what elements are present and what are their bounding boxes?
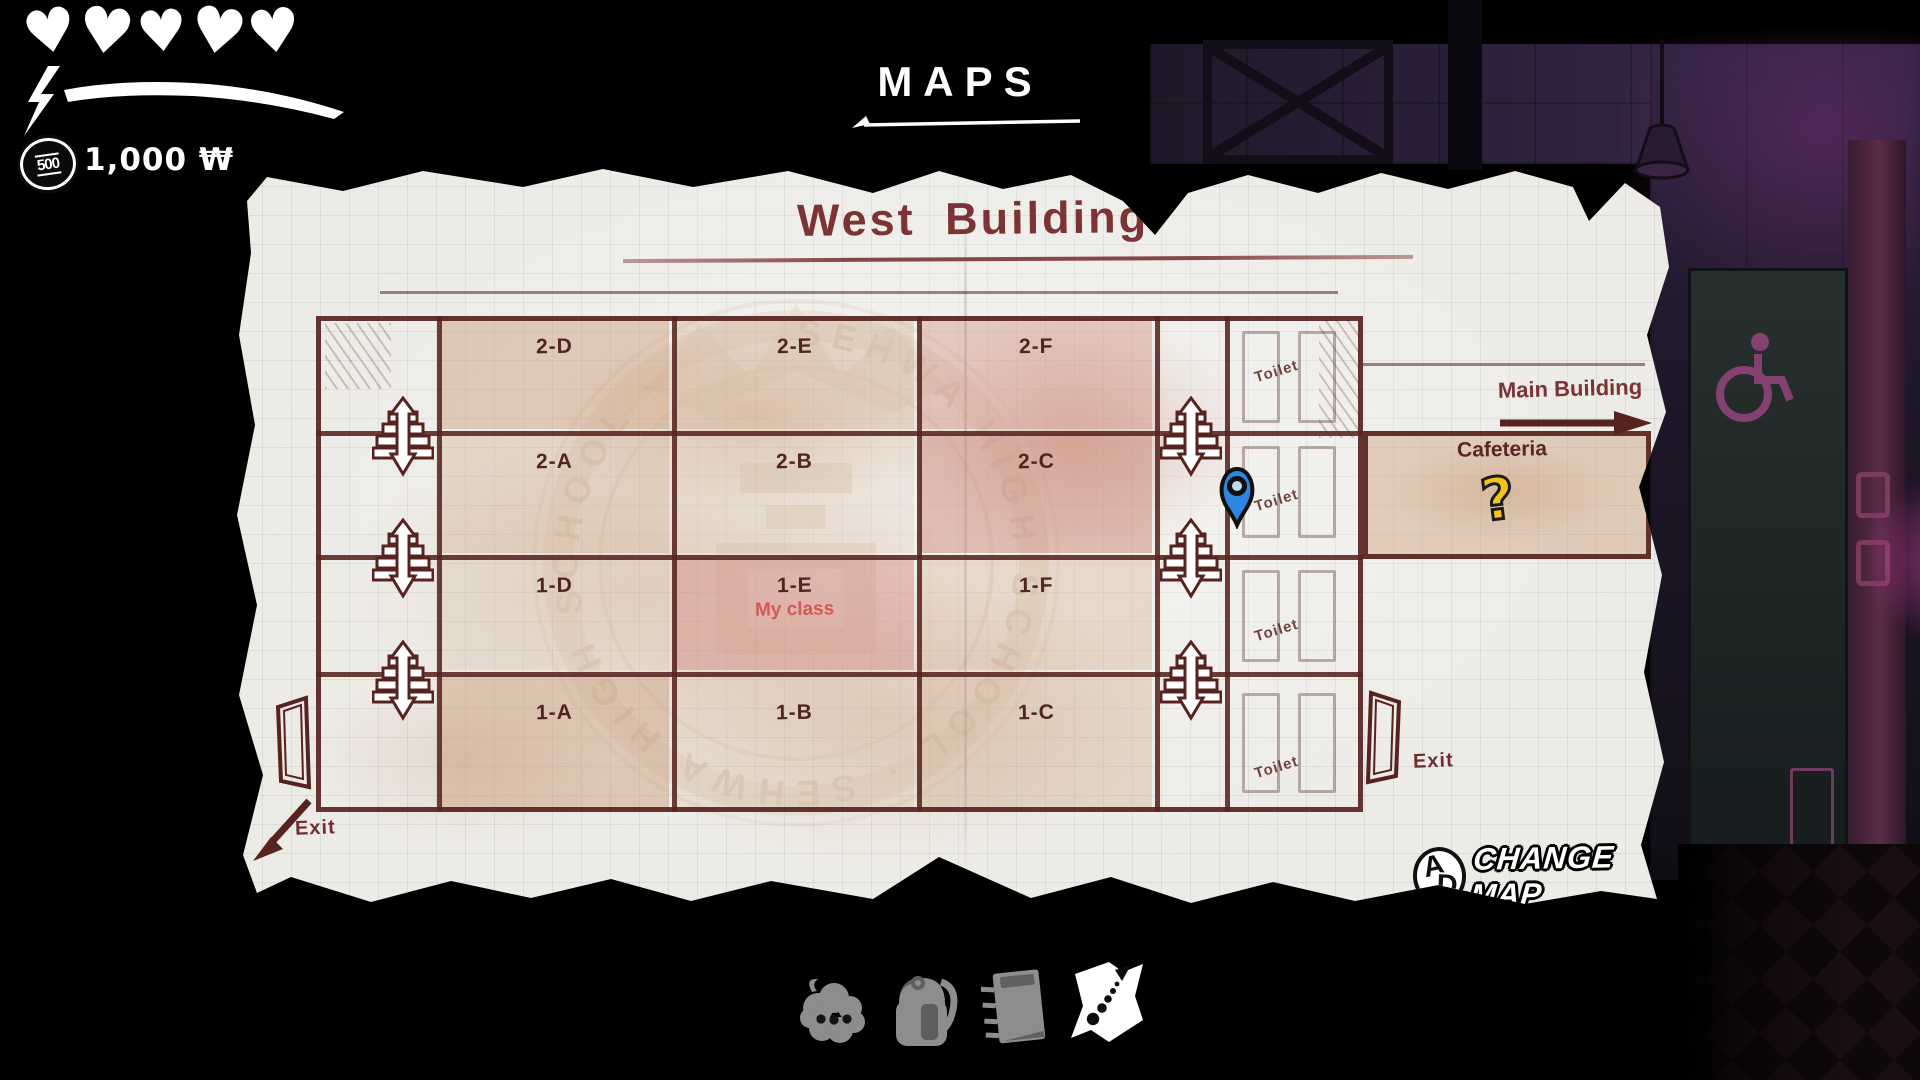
tab-maps[interactable] (1063, 956, 1149, 1053)
lamp-cord (1660, 40, 1664, 126)
corner-hatching (325, 323, 391, 389)
heart-icon (242, 0, 305, 67)
exit-door-icon (1363, 690, 1407, 788)
ceiling-beam (1448, 0, 1482, 170)
page-title: MAPS (810, 58, 1110, 106)
main-building-corridor-line (1363, 363, 1645, 366)
checkered-floor (1678, 844, 1920, 1080)
heart-icon (133, 0, 191, 65)
corridor-line (380, 291, 1338, 294)
folded-map-icon (1063, 956, 1149, 1050)
coin-value: 500 (35, 152, 62, 176)
key-d: D (1437, 869, 1459, 903)
notebook-icon (980, 964, 1046, 1050)
wheelchair-icon (1712, 330, 1798, 428)
thought-cloud-icon (796, 974, 868, 1050)
tab-status[interactable] (796, 974, 868, 1053)
wall (1225, 316, 1230, 812)
pendant-lamp-icon (1630, 120, 1694, 182)
stairs-icon (1160, 640, 1222, 724)
backpack-icon (885, 970, 963, 1050)
map-paper: SEHWA HIGH SCHOOL · SEHWA HIGH SCHOOL · … (233, 157, 1674, 906)
cafeteria-label: Cafeteria (1402, 436, 1602, 463)
exit-label-west: Exit (295, 816, 336, 840)
change-map-control[interactable]: A D CHANGE MAP (1413, 840, 1674, 912)
main-building-label: Main Building (1470, 373, 1671, 404)
title-underline (850, 112, 1085, 136)
coin-icon: 500 (17, 134, 80, 193)
stairs-icon (372, 518, 434, 602)
player-location-pin (1217, 465, 1257, 529)
stamina-bar (58, 72, 350, 126)
pink-glow (1852, 470, 1920, 650)
money-amount: 1,000 ₩ (84, 142, 234, 178)
exit-door-icon (270, 695, 314, 793)
wall (672, 316, 677, 812)
tab-notes[interactable] (980, 964, 1046, 1053)
tab-inventory[interactable] (885, 970, 963, 1053)
map-name: West Building (653, 190, 1294, 249)
change-map-label: CHANGE MAP (1469, 838, 1677, 914)
menu-tab-bar (796, 956, 1149, 1053)
stairs-icon (1160, 518, 1222, 602)
main-building-arrow-icon (1498, 405, 1654, 435)
stairs-icon (372, 640, 434, 724)
wall (917, 316, 922, 812)
wall-hatching (1319, 320, 1359, 438)
window-cross-frame (1203, 40, 1393, 164)
stairs-icon (1160, 396, 1222, 480)
exit-label-east: Exit (1413, 749, 1454, 773)
map-name-underline (623, 255, 1413, 263)
health-hearts (22, 0, 302, 64)
heart-icon (73, 0, 140, 69)
wall (437, 316, 442, 812)
heart-icon (184, 0, 253, 70)
keycap-ad-badge[interactable]: A D (1411, 845, 1468, 907)
game-screen: 500 1,000 ₩ MAPS SEHWA HIGH SCHOOL · SEH… (0, 0, 1920, 1080)
stairs-icon (372, 396, 434, 480)
